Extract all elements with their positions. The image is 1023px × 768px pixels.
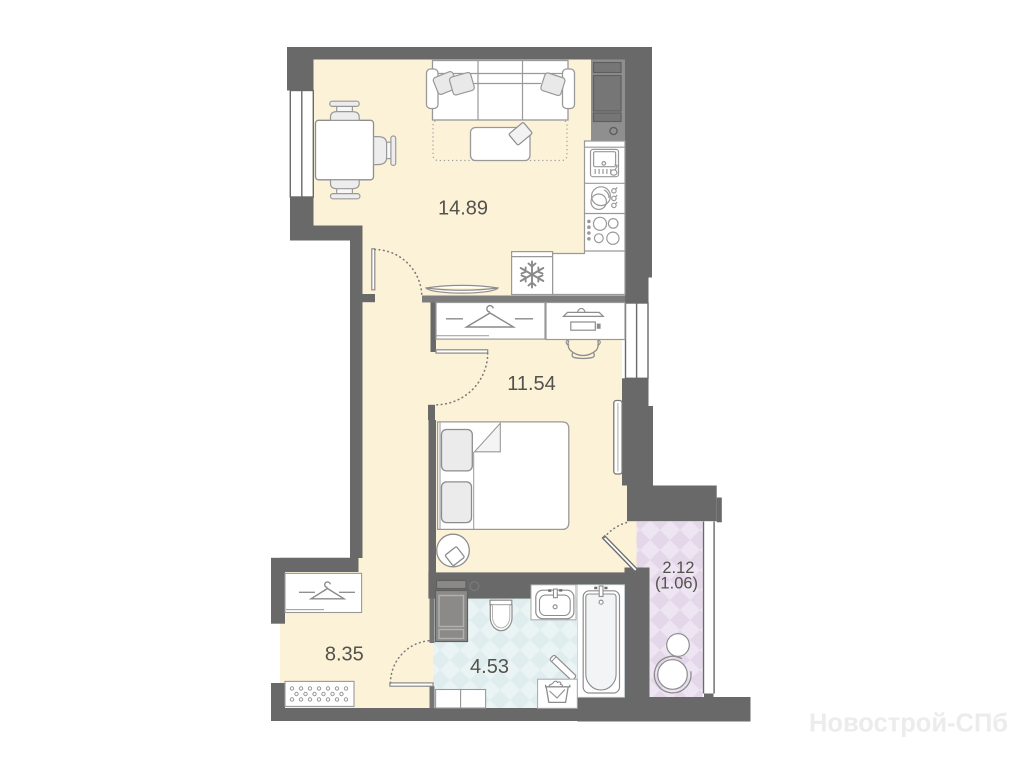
svg-text:14.89: 14.89 bbox=[438, 198, 488, 220]
svg-text:11.54: 11.54 bbox=[507, 373, 556, 395]
svg-text:Новострой-СПб: Новострой-СПб bbox=[809, 710, 1008, 738]
svg-text:(1.06): (1.06) bbox=[655, 574, 698, 592]
svg-text:8.35: 8.35 bbox=[325, 644, 364, 666]
svg-text:4.53: 4.53 bbox=[470, 656, 509, 678]
